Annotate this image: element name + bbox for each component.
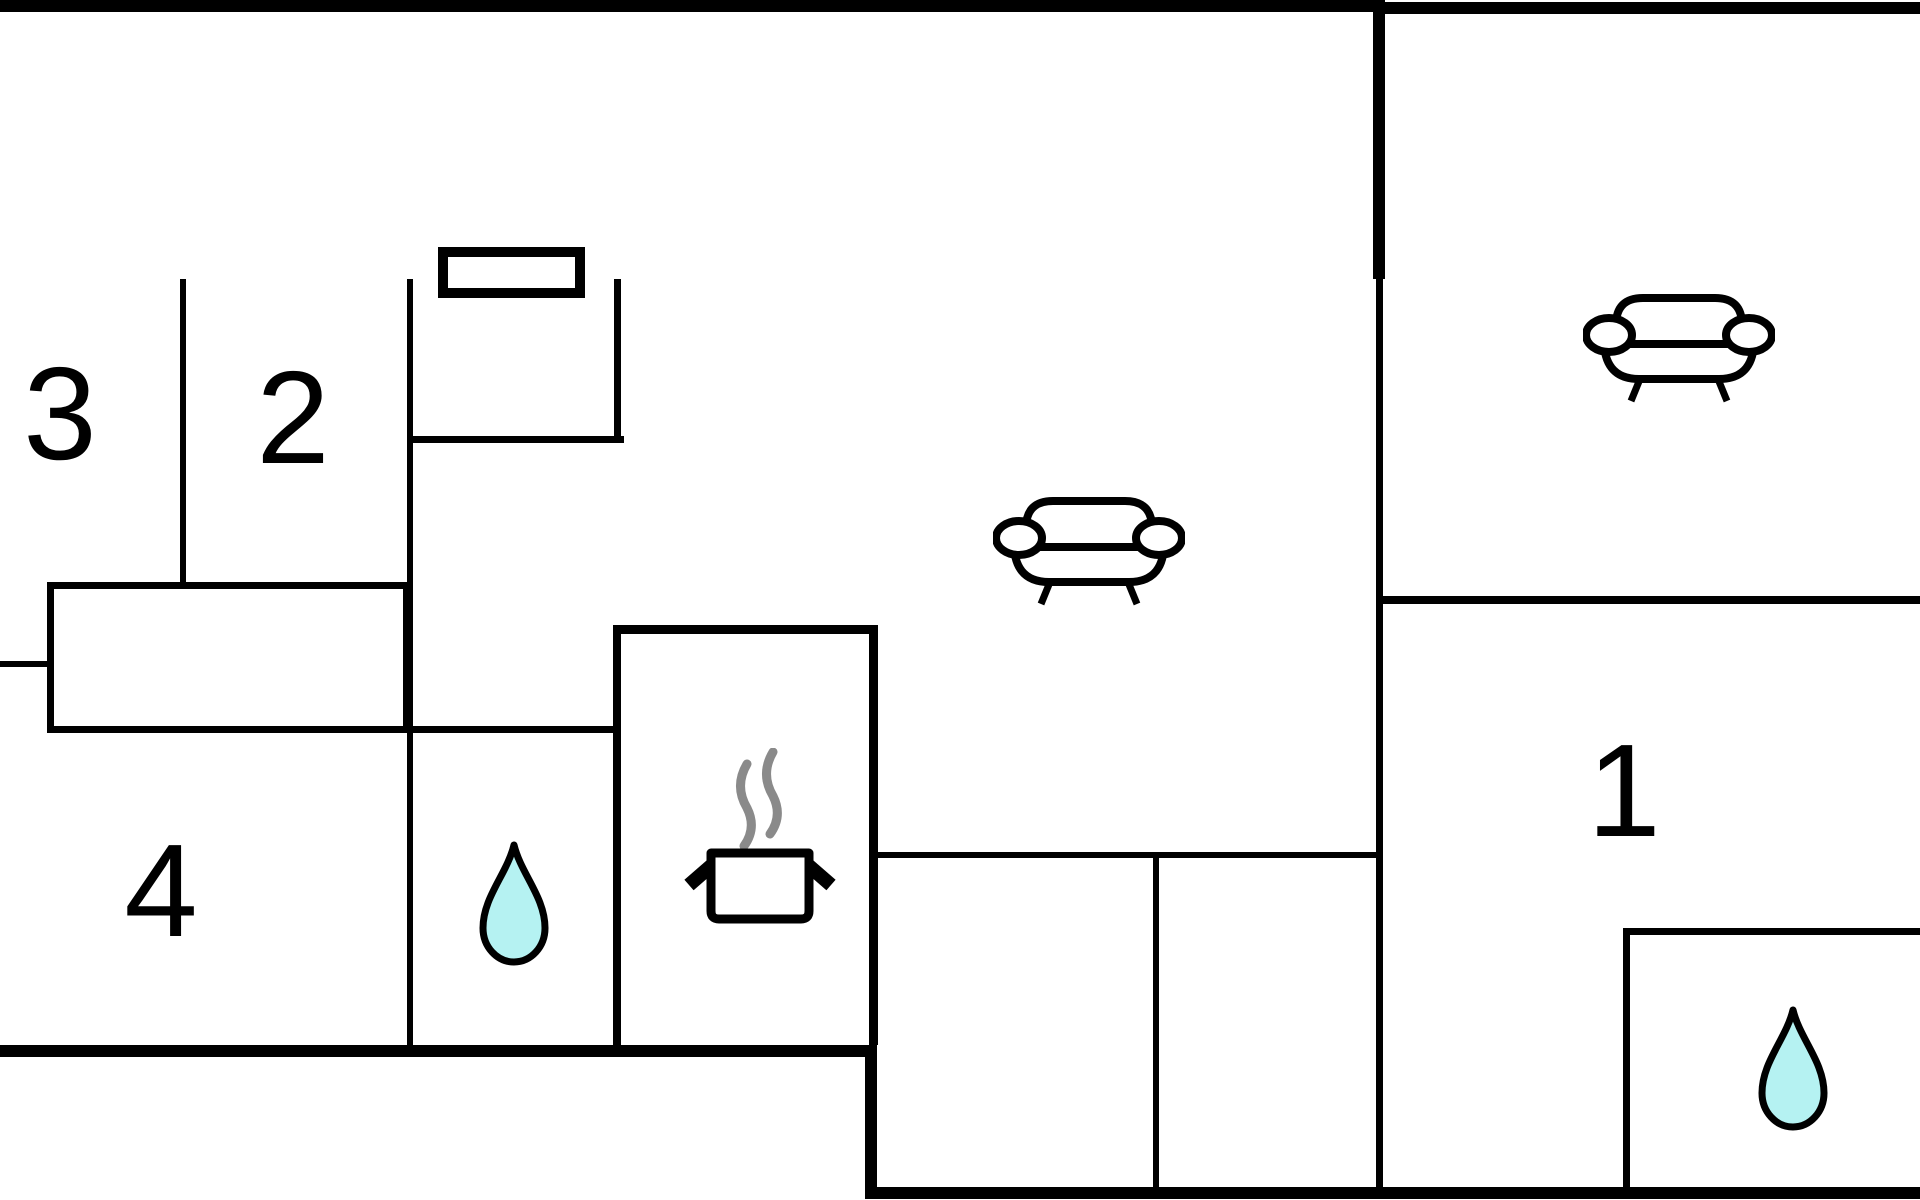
steam-icon — [733, 748, 789, 852]
partition-living-room1-vertical — [1376, 279, 1383, 1199]
room4-label: 4 — [101, 825, 221, 957]
exterior-wall-top-left — [0, 0, 1385, 12]
water-drop-icon — [476, 840, 552, 968]
room2-label: 2 — [233, 352, 353, 484]
closet-outline — [47, 582, 410, 733]
partition-bathroom-top — [410, 726, 621, 733]
cooking-pot-icon — [680, 845, 840, 927]
room3-label: 3 — [0, 348, 120, 480]
water-drop-icon — [1755, 1005, 1831, 1133]
partition-room1-top — [1379, 596, 1920, 604]
partition-entry-bottom — [410, 436, 624, 443]
window-icon — [438, 247, 585, 298]
partition-left-stub — [0, 661, 47, 667]
exterior-wall-bottom — [865, 1187, 1920, 1199]
partition-livingroom-bottom — [872, 852, 1380, 858]
exterior-wall-bottom-left — [0, 1045, 877, 1057]
floor-plan: 3 2 4 1 — [0, 0, 1920, 1200]
sofa-icon — [993, 494, 1185, 608]
partition-room3-room2 — [180, 279, 186, 582]
partition-bottom-rooms-divider — [1153, 855, 1159, 1187]
exterior-wall-vertical-upper — [1373, 0, 1385, 279]
partition-entry-right — [614, 279, 621, 442]
room1-label: 1 — [1564, 725, 1684, 857]
exterior-wall-top-right — [1373, 2, 1920, 14]
exterior-wall-step-vertical — [865, 1045, 877, 1199]
sofa-icon — [1583, 291, 1775, 405]
